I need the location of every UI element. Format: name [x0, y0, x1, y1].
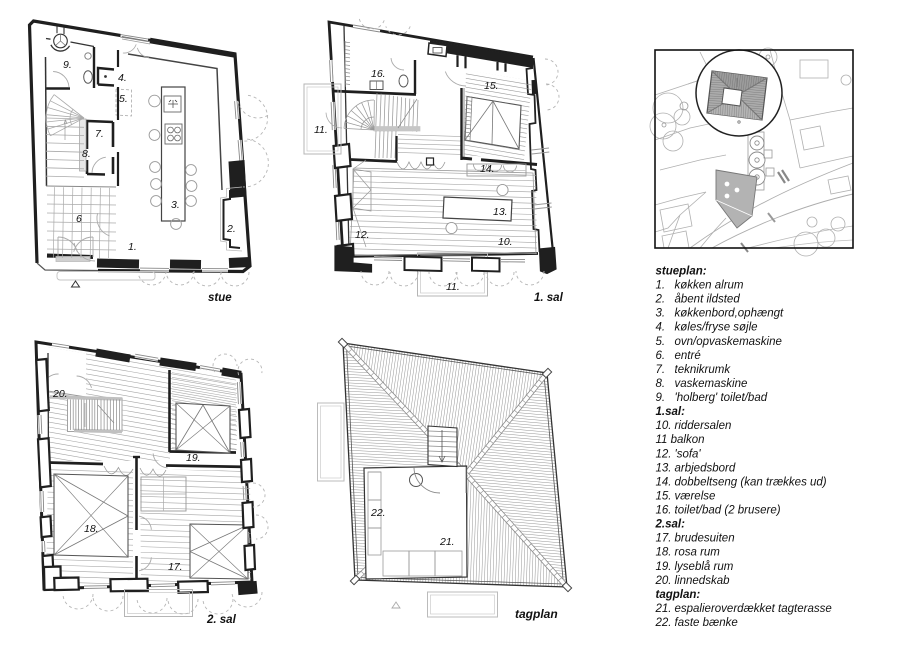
svg-text:1.sal:: 1.sal: — [656, 406, 686, 418]
svg-text:riddersalen: riddersalen — [675, 420, 732, 432]
svg-text:lyseblå rum: lyseblå rum — [675, 561, 734, 573]
svg-text:22.: 22. — [655, 617, 672, 629]
svg-text:21.: 21. — [439, 536, 455, 548]
svg-text:2.: 2. — [655, 294, 666, 306]
svg-text:11 balkon: 11 balkon — [656, 434, 705, 446]
svg-text:1.: 1. — [128, 241, 137, 253]
svg-text:åbent ildsted: åbent ildsted — [675, 294, 741, 306]
svg-text:espalieroverdækket tagterasse: espalieroverdækket tagterasse — [675, 603, 832, 615]
svg-text:7.: 7. — [95, 128, 104, 140]
svg-text:11.: 11. — [314, 124, 328, 136]
svg-text:5.: 5. — [119, 93, 128, 105]
svg-text:4.: 4. — [118, 72, 127, 84]
svg-text:1. sal: 1. sal — [534, 292, 564, 304]
svg-text:9.: 9. — [656, 392, 666, 404]
svg-text:19.: 19. — [656, 561, 672, 573]
svg-text:13.: 13. — [656, 462, 672, 474]
svg-text:10.: 10. — [656, 420, 672, 432]
svg-text:15.: 15. — [484, 80, 499, 92]
svg-text:15.: 15. — [656, 491, 672, 503]
svg-text:køkken alrum: køkken alrum — [675, 280, 744, 292]
svg-text:10.: 10. — [498, 236, 513, 248]
svg-text:1.: 1. — [656, 280, 666, 292]
svg-text:14.: 14. — [656, 476, 672, 488]
svg-text:19.: 19. — [186, 452, 201, 464]
svg-text:linnedskab: linnedskab — [675, 575, 731, 587]
svg-text:tagplan:: tagplan: — [656, 589, 701, 601]
svg-text:21.: 21. — [655, 603, 672, 615]
svg-text:'holberg' toilet/bad: 'holberg' toilet/bad — [675, 392, 768, 404]
svg-text:værelse: værelse — [675, 491, 716, 503]
svg-text:12.: 12. — [355, 229, 370, 241]
svg-text:20.: 20. — [655, 575, 672, 587]
svg-text:tagplan: tagplan — [515, 607, 558, 621]
svg-text:8.: 8. — [82, 148, 91, 160]
svg-text:entré: entré — [675, 350, 701, 362]
svg-text:teknikrumk: teknikrumk — [675, 364, 732, 376]
svg-text:2. sal: 2. sal — [206, 614, 237, 626]
svg-text:17.: 17. — [168, 561, 183, 573]
svg-text:14.: 14. — [480, 163, 495, 175]
svg-text:12.: 12. — [656, 448, 672, 460]
svg-text:18.: 18. — [656, 547, 672, 559]
svg-text:8.: 8. — [656, 378, 666, 390]
svg-text:køkkenbord,ophængt: køkkenbord,ophængt — [675, 308, 784, 320]
svg-text:11.: 11. — [446, 281, 460, 293]
svg-text:arbjedsbord: arbjedsbord — [675, 462, 736, 474]
svg-text:brudesuiten: brudesuiten — [675, 533, 735, 545]
svg-text:køles/fryse søjle: køles/fryse søjle — [675, 322, 758, 334]
svg-text:2.: 2. — [226, 223, 236, 235]
svg-text:16.: 16. — [656, 505, 672, 517]
svg-text:6: 6 — [76, 213, 82, 225]
svg-text:3.: 3. — [171, 199, 180, 211]
svg-text:toilet/bad (2 brusere): toilet/bad (2 brusere) — [675, 505, 781, 517]
svg-text:5.: 5. — [656, 336, 666, 348]
svg-text:17.: 17. — [656, 533, 672, 545]
svg-text:3.: 3. — [656, 308, 666, 320]
svg-text:rosa rum: rosa rum — [675, 547, 721, 559]
svg-text:vaskemaskine: vaskemaskine — [675, 378, 748, 390]
svg-text:22.: 22. — [370, 507, 386, 519]
svg-text:2.sal:: 2.sal: — [655, 519, 686, 531]
svg-text:7.: 7. — [656, 364, 666, 376]
svg-text:faste bænke: faste bænke — [675, 617, 738, 629]
svg-text:ovn/opvaskemaskine: ovn/opvaskemaskine — [675, 336, 782, 348]
svg-text:9.: 9. — [63, 59, 72, 71]
svg-text:4.: 4. — [656, 322, 666, 334]
svg-text:stueplan:: stueplan: — [656, 266, 707, 278]
svg-text:'sofa': 'sofa' — [675, 448, 702, 460]
svg-text:13.: 13. — [493, 206, 508, 218]
svg-text:20.: 20. — [52, 388, 68, 400]
svg-text:dobbeltseng (kan trækkes ud): dobbeltseng (kan trækkes ud) — [675, 476, 827, 488]
svg-text:18.: 18. — [84, 523, 99, 535]
svg-text:6.: 6. — [656, 350, 666, 362]
svg-text:stue: stue — [208, 292, 232, 304]
svg-text:16.: 16. — [371, 68, 386, 80]
